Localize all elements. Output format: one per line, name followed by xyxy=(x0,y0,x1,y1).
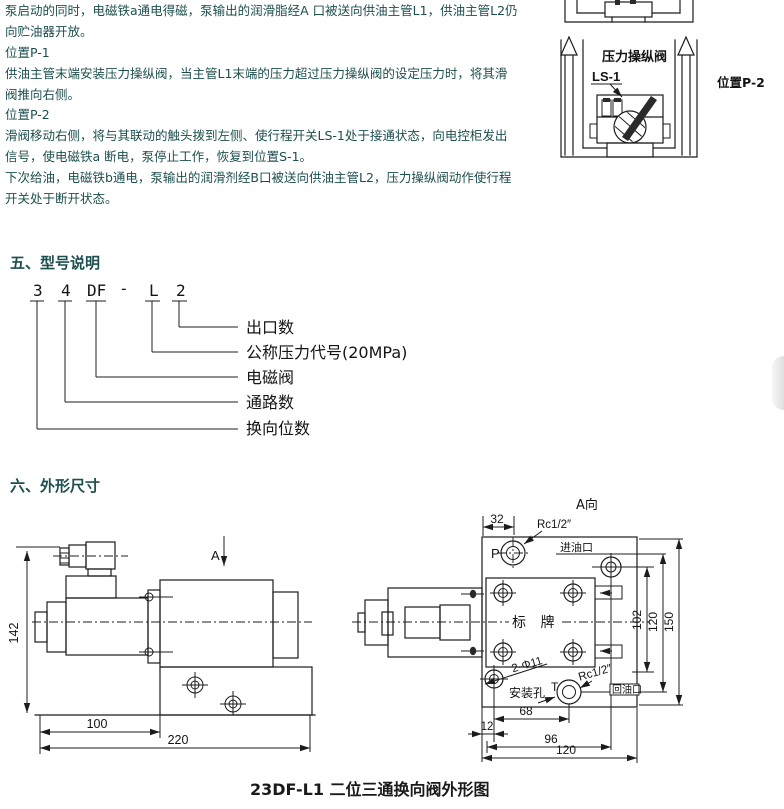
dim-12-label: 12 xyxy=(481,721,494,733)
dim-120v-label: 120 xyxy=(646,612,660,632)
position-p2-label: 位置P-2 xyxy=(717,75,765,90)
model-code-char: 2 xyxy=(176,281,186,300)
limit-switch-label: LS-1 xyxy=(592,69,620,84)
pressure-valve-label: 压力操纵阀 xyxy=(602,49,667,65)
flow-arrow-up-left xyxy=(561,37,577,155)
model-code-char: 3 xyxy=(33,281,43,300)
p2-position-diagram: 压力操纵阀 LS-1 位置P-2 xyxy=(561,37,765,157)
dim-220-label: 220 xyxy=(168,733,189,747)
dim-102-label: 102 xyxy=(630,610,644,630)
dim-100-label: 100 xyxy=(87,717,108,731)
mount-hole-label: 安装孔 xyxy=(509,685,545,700)
model-meaning-label: 换向位数 xyxy=(246,419,310,438)
document-page: 泵启动的同时，电磁铁a通电得磁，泵输出的润滑脂经A 口被送向供油主管L1，供油主… xyxy=(0,0,784,809)
side-view-drawing: 142 xyxy=(7,536,315,754)
model-code-char: 4 xyxy=(61,281,71,300)
outlet-port-label: 回油口 xyxy=(612,683,642,696)
scrollbar-thumb[interactable] xyxy=(772,356,784,410)
flow-arrow-up-right xyxy=(678,37,694,155)
dim-150-label: 150 xyxy=(662,612,676,632)
model-code-diagram: 3 4 DF - L 2 出口数 公称压力代号(2 xyxy=(30,279,407,438)
dim-142-label: 142 xyxy=(7,623,21,644)
model-meaning-label: 出口数 xyxy=(246,318,294,337)
dim-68-label: 68 xyxy=(519,704,533,718)
model-code-char: L xyxy=(149,281,159,300)
mount-holes-size-label: 2-Φ11 xyxy=(510,655,543,675)
port-t-label: T xyxy=(551,680,559,694)
dim-120h-label: 120 xyxy=(556,743,576,757)
model-code-char: DF xyxy=(87,281,106,300)
dim-32-label: 32 xyxy=(490,512,504,526)
port-p-label: P xyxy=(491,546,500,561)
p2-upper-diagram-partial xyxy=(565,0,693,22)
model-code-char: - xyxy=(119,279,129,298)
model-meaning-label: 通路数 xyxy=(246,393,294,412)
a-view-drawing: A向 标 牌 P 32 Rc1 xyxy=(352,497,683,763)
nameplate-label: 标 牌 xyxy=(512,614,559,631)
model-meaning-label: 电磁阀 xyxy=(246,368,294,387)
view-a-arrow-label: A xyxy=(211,548,220,563)
a-view-title: A向 xyxy=(576,497,598,513)
model-meaning-label: 公称压力代号(20MPa) xyxy=(246,343,407,362)
inlet-port-label: 进油口 xyxy=(560,540,593,554)
thread-top-label: Rc1/2″ xyxy=(537,519,571,531)
line-art-layer: 压力操纵阀 LS-1 位置P-2 3 4 DF - L 2 xyxy=(0,0,784,809)
